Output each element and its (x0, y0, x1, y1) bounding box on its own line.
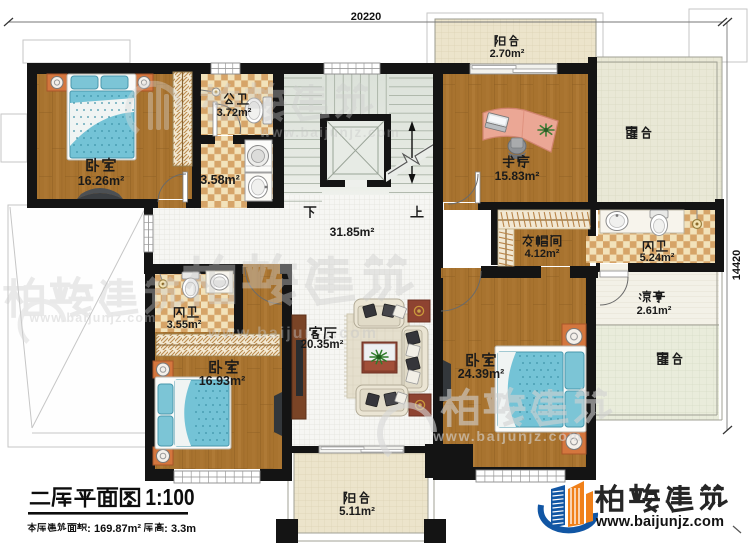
svg-text::: : (87, 523, 91, 535)
svg-text::: : (164, 523, 168, 535)
svg-text:5.11m²: 5.11m² (339, 506, 375, 518)
svg-text:www.baijunjz.com: www.baijunjz.com (259, 125, 401, 140)
svg-text:2.70m²: 2.70m² (490, 48, 525, 60)
svg-text:24.39m²: 24.39m² (458, 367, 505, 381)
svg-text:31.85m²: 31.85m² (330, 225, 375, 239)
svg-text:15.83m²: 15.83m² (495, 169, 540, 183)
svg-text:3.3m: 3.3m (171, 523, 196, 535)
svg-text:16.26m²: 16.26m² (78, 174, 125, 188)
svg-text:www.baijunjz.com: www.baijunjz.com (28, 311, 156, 325)
svg-text:169.87m²: 169.87m² (94, 523, 141, 535)
svg-text:14420: 14420 (731, 250, 743, 281)
svg-text:3.55m²: 3.55m² (167, 319, 202, 331)
svg-text:20.35m²: 20.35m² (301, 339, 344, 351)
svg-text:www.baijunjz.com: www.baijunjz.com (207, 325, 378, 342)
svg-text:3.58m²: 3.58m² (200, 173, 240, 187)
svg-text:1:100: 1:100 (145, 484, 194, 510)
svg-text:www.baijunjz.com: www.baijunjz.com (595, 514, 724, 530)
svg-text:2.61m²: 2.61m² (637, 305, 672, 317)
svg-text:16.93m²: 16.93m² (199, 374, 246, 388)
svg-text:www.baijunjz.com: www.baijunjz.com (432, 428, 583, 444)
svg-text:5.24m²: 5.24m² (640, 252, 675, 264)
svg-text:20220: 20220 (351, 11, 382, 23)
svg-text:3.72m²: 3.72m² (217, 107, 252, 119)
svg-text:4.12m²: 4.12m² (525, 248, 560, 260)
